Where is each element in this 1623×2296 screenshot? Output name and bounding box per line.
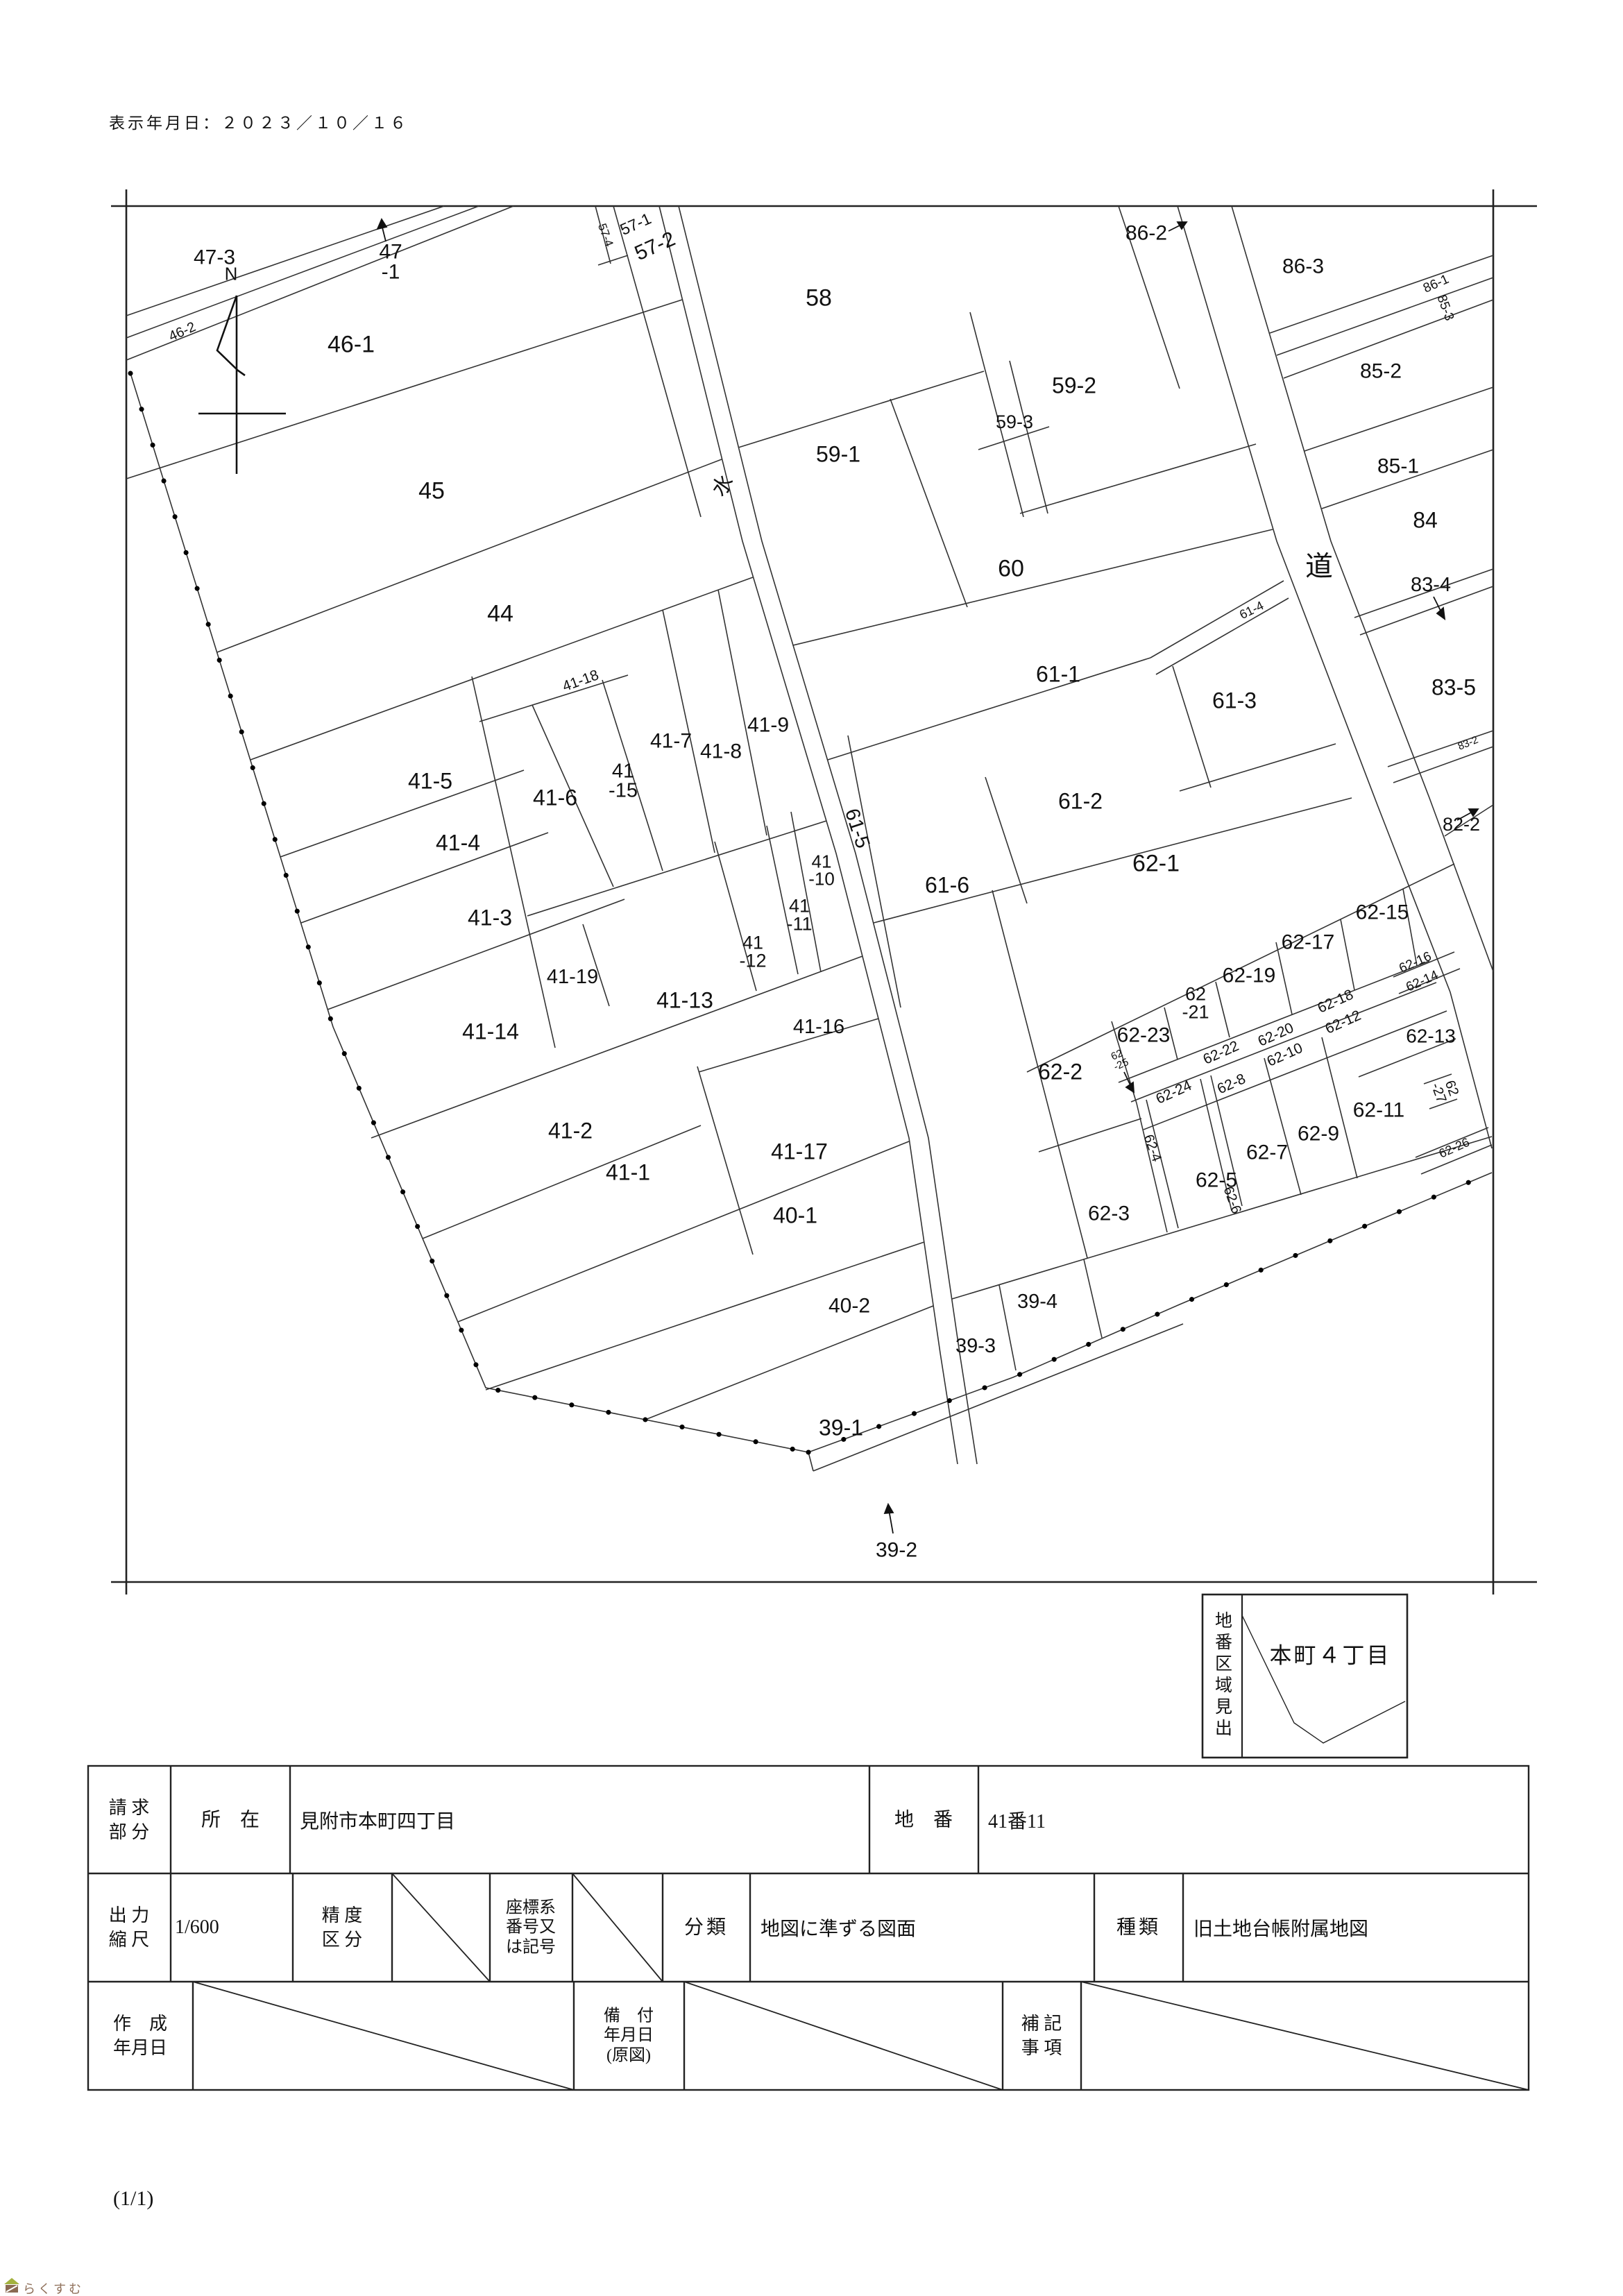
map-label-44: 44: [487, 602, 513, 625]
table-label-classification: 分類: [684, 1918, 729, 1937]
map-label-62-2: 62-2: [1038, 1061, 1082, 1082]
map-label-62-17: 62-17: [1282, 932, 1335, 952]
table-label-creation-date: 作 成 年月日: [113, 2012, 167, 2060]
display-date: 表示年月日：２０２３／１０／１６: [109, 110, 409, 133]
map-label-85-1: 85-1: [1377, 456, 1419, 476]
map-label-41-4: 41-4: [436, 832, 480, 853]
map-label-road: 道: [1305, 553, 1333, 580]
map-label-41-16: 41-16: [793, 1017, 844, 1037]
table-label-request-part: 請 求 部 分: [109, 1796, 150, 1844]
table-label-supplementary-notes: 補 記 事 項: [1021, 2012, 1062, 2060]
table-label-type: 種類: [1116, 1918, 1161, 1937]
map-label-83-5: 83-5: [1431, 677, 1476, 698]
map-label-41-5: 41-5: [408, 770, 452, 792]
map-label-45: 45: [418, 479, 445, 502]
map-label-41-11: 41 -11: [786, 897, 812, 934]
map-label-62-1: 62-1: [1132, 852, 1180, 875]
map-label-62-23: 62-23: [1117, 1025, 1171, 1045]
table-value-location: 見附市本町四丁目: [300, 1806, 455, 1834]
table-label-filing-date: 備 付 年月日 (原図): [604, 2007, 654, 2066]
map-label-61-2: 61-2: [1058, 790, 1103, 812]
map-label-39-3: 39-3: [955, 1336, 996, 1356]
map-label-82-2: 82-2: [1443, 815, 1480, 833]
map-label-60: 60: [998, 557, 1024, 580]
map-label-59-3: 59-3: [996, 413, 1033, 431]
map-label-62-21: 62 -21: [1182, 985, 1209, 1022]
map-label-59-1: 59-1: [816, 443, 860, 465]
map-label-39-4: 39-4: [1017, 1292, 1057, 1311]
map-frame: [111, 189, 1537, 1595]
map-label-62-19: 62-19: [1223, 965, 1276, 985]
map-label-40-1: 40-1: [773, 1205, 817, 1226]
map-label-40-2: 40-2: [829, 1295, 870, 1316]
map-label-86-3: 86-3: [1282, 256, 1324, 276]
map-label-86-2: 86-2: [1125, 223, 1167, 243]
map-label-84: 84: [1413, 509, 1438, 531]
map-label-62-3: 62-3: [1088, 1203, 1130, 1223]
map-label-41-12: 41 -12: [739, 934, 766, 971]
map-label-41-14: 41-14: [462, 1021, 519, 1042]
table-label-precision-class: 精 度 区 分: [322, 1903, 363, 1952]
map-label-61-6: 61-6: [925, 874, 969, 896]
map-label-41-10: 41 -10: [808, 853, 835, 889]
map-label-85-2: 85-2: [1360, 361, 1402, 381]
map-label-41-13: 41-13: [656, 989, 713, 1011]
map-label-41-15: 41 -15: [609, 762, 638, 801]
map-label-39-1: 39-1: [819, 1417, 863, 1438]
map-label-41-2: 41-2: [548, 1120, 593, 1141]
map-label-58: 58: [806, 287, 832, 309]
table-value-type: 旧土地台帳附属地図: [1193, 1914, 1368, 1941]
map-label-62-11: 62-11: [1353, 1100, 1405, 1120]
map-label-62-7: 62-7: [1246, 1142, 1288, 1162]
map-label-62-13: 62-13: [1406, 1026, 1456, 1045]
map-label-39-2: 39-2: [876, 1540, 917, 1560]
map-label-47-1: 47 -1: [379, 242, 402, 283]
map-label-north-n: N: [225, 265, 238, 282]
page-number: (1/1): [113, 2187, 153, 2211]
parcel-lines: [126, 206, 1493, 1471]
map-label-41-19: 41-19: [547, 967, 598, 987]
map-label-46-1: 46-1: [328, 333, 375, 356]
map-label-41-6: 41-6: [533, 787, 577, 808]
north-symbol: [198, 296, 286, 474]
map-label-41-17: 41-17: [771, 1141, 828, 1162]
map-label-41-7: 41-7: [650, 731, 692, 751]
table-value-parcel-number: 41番11: [988, 1806, 1046, 1834]
legend-box-lines: [1203, 1595, 1407, 1758]
legend-area-name: 本町４丁目: [1269, 1644, 1391, 1666]
table-label-output-scale: 出 力 縮 尺: [109, 1903, 150, 1952]
table-label-parcel-number: 地 番: [894, 1810, 953, 1829]
table-value-scale: 1/600: [175, 1916, 219, 1939]
map-label-62-9: 62-9: [1298, 1123, 1339, 1143]
map-label-83-4: 83-4: [1411, 575, 1451, 595]
logo-house-icon: [4, 2278, 19, 2293]
map-label-41-3: 41-3: [468, 907, 512, 928]
map-label-62-15: 62-15: [1356, 902, 1409, 922]
map-label-41-1: 41-1: [606, 1162, 650, 1183]
map-label-61-1: 61-1: [1036, 663, 1080, 685]
map-label-59-2: 59-2: [1052, 375, 1096, 396]
document-page: 表示年月日：２０２３／１０／１６ 47-3N47 -146-246-145445…: [0, 0, 1623, 2296]
legend-side-label: 地番区域見出: [1214, 1611, 1231, 1740]
table-label-location: 所 在: [201, 1810, 260, 1829]
table-value-classification: 地図に準ずる図面: [760, 1914, 916, 1941]
map-label-61-3: 61-3: [1212, 690, 1257, 711]
logo-text: らくすむ: [23, 2279, 84, 2296]
table-label-coordinate-system: 座標系 番号又 は記号: [506, 1898, 556, 1957]
map-label-41-9: 41-9: [747, 715, 789, 735]
map-label-41-8: 41-8: [700, 741, 742, 761]
